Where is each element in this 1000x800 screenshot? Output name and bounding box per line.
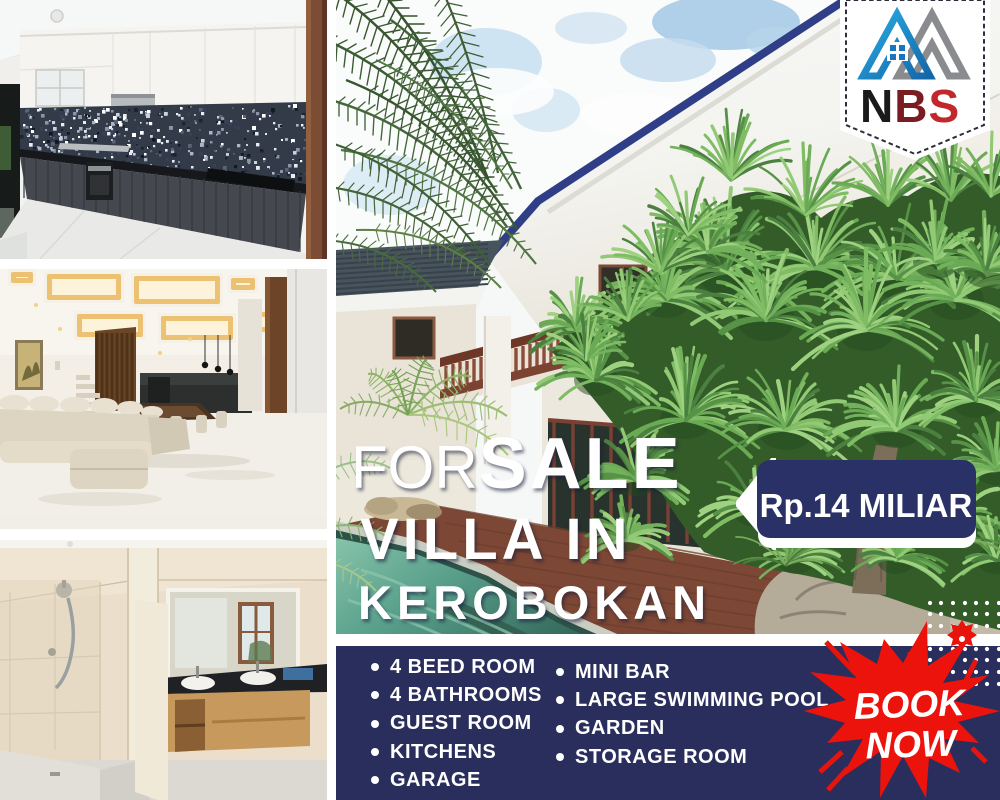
svg-text:NBS: NBS [860, 80, 960, 132]
svg-text:Rp.14 MILIAR: Rp.14 MILIAR [760, 487, 973, 524]
